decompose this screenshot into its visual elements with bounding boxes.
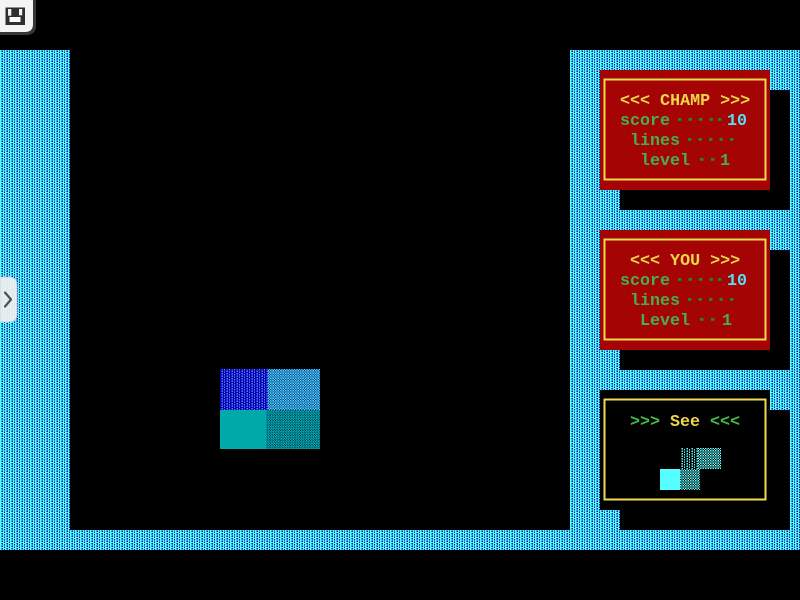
svg-text:See: See — [670, 413, 700, 432]
svg-text:Level: Level — [640, 312, 690, 331]
svg-text:1: 1 — [722, 312, 732, 331]
svg-text:score: score — [620, 272, 670, 291]
svg-text:lines: lines — [630, 132, 680, 151]
svg-text:level: level — [640, 152, 690, 171]
svg-text:10: 10 — [727, 272, 747, 291]
svg-text:>>>: >>> — [630, 413, 660, 432]
svg-text:score: score — [620, 112, 670, 131]
svg-text:<<< CHAMP >>>: <<< CHAMP >>> — [620, 92, 750, 111]
svg-text:10: 10 — [727, 112, 747, 131]
svg-text:<<<: <<< — [710, 413, 740, 432]
svg-text:lines: lines — [630, 292, 680, 311]
svg-text:<<< YOU >>>: <<< YOU >>> — [630, 252, 740, 271]
svg-text:1: 1 — [720, 152, 730, 171]
